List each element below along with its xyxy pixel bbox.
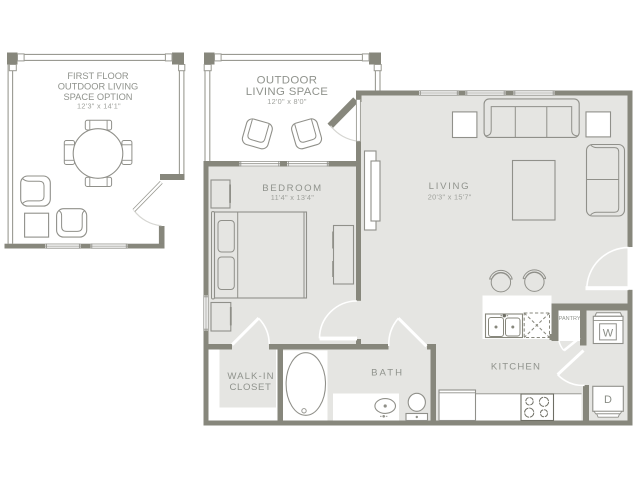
svg-text:FIRST FLOOR: FIRST FLOOR	[67, 71, 129, 81]
svg-text:OUTDOOR: OUTDOOR	[257, 74, 318, 86]
svg-text:12'0" x 8'0": 12'0" x 8'0"	[267, 97, 307, 106]
svg-text:D: D	[604, 394, 612, 406]
svg-text:KITCHEN: KITCHEN	[491, 362, 541, 373]
svg-text:SPACE OPTION: SPACE OPTION	[63, 92, 132, 102]
svg-text:W: W	[603, 327, 614, 339]
svg-text:CLOSET: CLOSET	[230, 382, 272, 393]
svg-text:BATH: BATH	[371, 368, 404, 379]
svg-text:PANTRY: PANTRY	[559, 316, 581, 322]
svg-text:OUTDOOR LIVING: OUTDOOR LIVING	[58, 82, 139, 92]
svg-text:20'3" x 15'7": 20'3" x 15'7"	[428, 192, 472, 201]
svg-text:12'3" x 14'1": 12'3" x 14'1"	[77, 102, 121, 111]
svg-text:LIVING SPACE: LIVING SPACE	[246, 86, 329, 98]
svg-text:WALK-IN: WALK-IN	[227, 371, 274, 382]
svg-text:11'4" x 13'4": 11'4" x 13'4"	[271, 193, 314, 202]
svg-text:LIVING: LIVING	[429, 181, 471, 192]
